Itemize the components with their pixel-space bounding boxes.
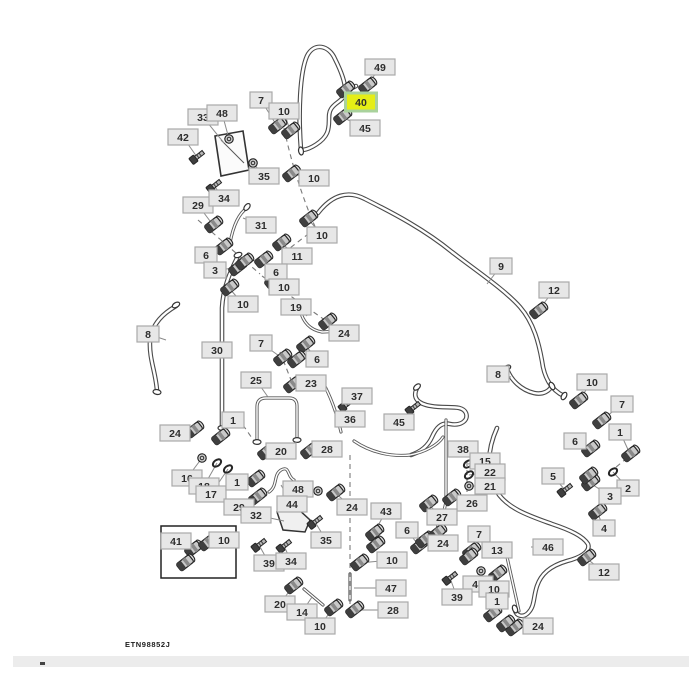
- hose-path: [318, 195, 564, 396]
- callout-number: 41: [170, 536, 182, 548]
- callout-number: 35: [320, 535, 332, 547]
- callout-number: 36: [344, 414, 356, 426]
- callout-label-layer: 4940457103348423510293431101163610101924…: [137, 59, 639, 634]
- callout-28[interactable]: 28: [312, 441, 342, 457]
- callout-9[interactable]: 9: [490, 258, 512, 274]
- callout-number: 24: [346, 502, 358, 514]
- hose-path: [300, 47, 345, 150]
- callout-number: 2: [625, 483, 631, 495]
- callout-number: 46: [542, 542, 554, 554]
- callout-number: 24: [437, 538, 449, 550]
- callout-number: 6: [203, 250, 209, 262]
- callout-number: 9: [498, 261, 504, 273]
- callout-number: 39: [263, 558, 275, 570]
- callout-47[interactable]: 47: [376, 580, 406, 596]
- callout-39[interactable]: 39: [442, 589, 472, 605]
- callout-4[interactable]: 4: [593, 520, 615, 536]
- part-48-icon[interactable]: [312, 485, 324, 497]
- callout-number: 10: [316, 230, 328, 242]
- callout-number: 7: [258, 95, 264, 107]
- callout-number: 28: [387, 605, 399, 617]
- callout-number: 10: [314, 621, 326, 633]
- callout-13[interactable]: 13: [482, 542, 512, 558]
- callout-number: 19: [290, 302, 302, 314]
- callout-number: 21: [484, 481, 496, 493]
- callout-10[interactable]: 10: [209, 532, 239, 548]
- callout-19[interactable]: 19: [281, 299, 311, 315]
- callout-number: 37: [351, 391, 363, 403]
- callout-number: 44: [286, 499, 298, 511]
- callout-number: 11: [291, 251, 302, 263]
- callout-6[interactable]: 6: [195, 247, 217, 263]
- hose-end-cap: [412, 383, 421, 392]
- callout-number: 6: [314, 354, 320, 366]
- callout-number: 28: [321, 444, 333, 456]
- callout-number: 24: [338, 328, 350, 340]
- callout-10[interactable]: 10: [577, 374, 607, 390]
- part-10-icon[interactable]: [220, 278, 240, 297]
- callout-34[interactable]: 34: [209, 190, 239, 206]
- callout-number: 7: [476, 529, 482, 541]
- callout-number: 34: [218, 193, 230, 205]
- callout-number: 10: [237, 299, 249, 311]
- callout-35[interactable]: 35: [249, 168, 279, 184]
- callout-number: 7: [258, 338, 264, 350]
- part-39-icon[interactable]: [442, 570, 459, 586]
- callout-number: 1: [230, 415, 236, 427]
- callout-1[interactable]: 1: [609, 424, 631, 440]
- part-16-icon[interactable]: [196, 452, 208, 464]
- callout-1[interactable]: 1: [226, 474, 248, 490]
- hose-path-inner: [318, 195, 564, 396]
- callout-number: 38: [457, 444, 469, 456]
- parts-diagram-stage: 4940457103348423510293431101163610101924…: [0, 0, 700, 700]
- callout-number: 5: [550, 471, 556, 483]
- callout-number: 25: [250, 375, 262, 387]
- callout-31[interactable]: 31: [246, 217, 276, 233]
- part-21-icon[interactable]: [463, 480, 475, 492]
- callout-number: 3: [607, 491, 613, 503]
- callout-17[interactable]: 17: [196, 486, 226, 502]
- callout-number: 1: [494, 596, 500, 608]
- callout-24[interactable]: 24: [523, 618, 553, 634]
- part-1-icon[interactable]: [621, 444, 641, 463]
- callout-35[interactable]: 35: [311, 532, 341, 548]
- part-39-icon[interactable]: [251, 537, 268, 553]
- callout-8[interactable]: 8: [137, 326, 159, 342]
- callout-45[interactable]: 45: [350, 120, 380, 136]
- callout-20[interactable]: 20: [266, 443, 296, 459]
- callout-3[interactable]: 3: [599, 488, 621, 504]
- callout-number: 14: [296, 607, 308, 619]
- callout-number: 6: [273, 267, 279, 279]
- callout-48[interactable]: 48: [207, 105, 237, 121]
- part-4-icon[interactable]: [588, 502, 608, 521]
- callout-number: 10: [218, 535, 230, 547]
- callout-28[interactable]: 28: [378, 602, 408, 618]
- callout-number: 24: [169, 428, 181, 440]
- callout-24[interactable]: 24: [329, 325, 359, 341]
- callout-6[interactable]: 6: [564, 433, 586, 449]
- callout-number: 27: [436, 512, 448, 524]
- callout-number: 10: [308, 173, 320, 185]
- callout-number: 1: [234, 477, 240, 489]
- callout-49[interactable]: 49: [365, 59, 395, 75]
- callout-number: 30: [211, 345, 223, 357]
- part-icon[interactable]: [176, 553, 196, 572]
- callout-number: 17: [205, 489, 217, 501]
- callout-number: 39: [451, 592, 463, 604]
- callout-number: 34: [285, 556, 297, 568]
- hose-end-cap: [243, 202, 252, 211]
- hose-end-cap: [253, 440, 261, 445]
- callout-number: 32: [250, 510, 262, 522]
- part-10-icon[interactable]: [350, 553, 370, 572]
- callout-number: 6: [404, 525, 410, 537]
- callout-24[interactable]: 24: [337, 499, 367, 515]
- callout-7[interactable]: 7: [611, 396, 633, 412]
- callout-number: 13: [491, 545, 503, 557]
- callout-number: 29: [192, 200, 204, 212]
- callout-number: 12: [548, 285, 560, 297]
- callout-number: 3: [212, 265, 218, 277]
- callout-number: 31: [255, 220, 267, 232]
- callout-44[interactable]: 44: [277, 496, 307, 512]
- callout-42[interactable]: 42: [168, 129, 198, 145]
- hose-end-cap: [293, 438, 301, 443]
- callout-27[interactable]: 27: [427, 509, 457, 525]
- callout-24[interactable]: 24: [428, 535, 458, 551]
- callout-number: 12: [598, 567, 610, 579]
- callout-number: 1: [617, 427, 623, 439]
- callout-3[interactable]: 3: [204, 262, 226, 278]
- tube-path-inner: [257, 398, 297, 442]
- callout-1[interactable]: 1: [222, 412, 244, 428]
- callout-48[interactable]: 48: [283, 481, 313, 497]
- callout-number: 22: [484, 467, 496, 479]
- callout-12[interactable]: 12: [539, 282, 569, 298]
- tube-path: [257, 398, 297, 442]
- callout-number: 24: [532, 621, 544, 633]
- tube-path-inner: [304, 589, 323, 605]
- callout-number: 8: [145, 329, 151, 341]
- callout-11[interactable]: 11: [282, 248, 312, 264]
- callout-number: 26: [466, 498, 478, 510]
- callout-40-highlighted[interactable]: 40: [346, 93, 377, 111]
- callout-number: 10: [278, 282, 290, 294]
- callout-6[interactable]: 6: [265, 264, 287, 280]
- callout-number: 48: [292, 484, 304, 496]
- callout-1[interactable]: 1: [486, 593, 508, 609]
- part-34-icon[interactable]: [276, 538, 293, 554]
- callout-number: 10: [386, 555, 398, 567]
- hose-path: [150, 306, 176, 391]
- part-42-icon[interactable]: [189, 149, 206, 165]
- callout-23[interactable]: 23: [296, 375, 326, 391]
- callout-number: 23: [305, 378, 317, 390]
- callout-7[interactable]: 7: [250, 335, 272, 351]
- callout-46[interactable]: 46: [533, 539, 563, 555]
- hose-tube-layer: [150, 47, 627, 616]
- part-10-icon[interactable]: [569, 391, 589, 410]
- callout-number: 20: [275, 446, 287, 458]
- callout-10[interactable]: 10: [377, 552, 407, 568]
- callout-number: 4: [601, 523, 607, 535]
- callout-5[interactable]: 5: [542, 468, 564, 484]
- callout-10[interactable]: 10: [228, 296, 258, 312]
- callout-number: 47: [385, 583, 397, 595]
- callout-45[interactable]: 45: [384, 414, 414, 430]
- callout-10[interactable]: 10: [305, 618, 335, 634]
- part-1-icon[interactable]: [246, 469, 266, 488]
- callout-34[interactable]: 34: [276, 553, 306, 569]
- part-12-icon[interactable]: [529, 301, 549, 320]
- callout-number: 45: [393, 417, 405, 429]
- callout-number: 35: [258, 171, 270, 183]
- callout-number: 7: [619, 399, 625, 411]
- callout-number: 8: [495, 369, 501, 381]
- callout-number: 48: [216, 108, 228, 120]
- callout-26[interactable]: 26: [457, 495, 487, 511]
- callout-30[interactable]: 30: [202, 342, 232, 358]
- callout-37[interactable]: 37: [342, 388, 372, 404]
- callout-43[interactable]: 43: [371, 503, 401, 519]
- part-28-icon[interactable]: [345, 600, 365, 619]
- callout-25[interactable]: 25: [241, 372, 271, 388]
- part-45-icon[interactable]: [405, 400, 422, 416]
- callout-number: 49: [374, 62, 386, 74]
- part-10-icon[interactable]: [299, 209, 319, 228]
- callout-number: 10: [278, 106, 290, 118]
- callout-number: 10: [586, 377, 598, 389]
- hose-end-cap: [298, 147, 304, 156]
- hose-end-cap: [153, 389, 162, 395]
- callout-number: 20: [274, 599, 286, 611]
- scrollbar-thumb[interactable]: [40, 662, 45, 665]
- tube-path: [230, 208, 247, 243]
- part-10-icon[interactable]: [324, 598, 344, 617]
- callout-number: 43: [380, 506, 392, 518]
- part-48-icon[interactable]: [475, 565, 487, 577]
- callout-36[interactable]: 36: [335, 411, 365, 427]
- callout-32[interactable]: 32: [241, 507, 271, 523]
- callout-number: 45: [359, 123, 371, 135]
- callout-10[interactable]: 10: [307, 227, 337, 243]
- callout-8[interactable]: 8: [487, 366, 509, 382]
- callout-41[interactable]: 41: [161, 533, 191, 549]
- exploded-parts-diagram: 4940457103348423510293431101163610101924…: [0, 0, 700, 700]
- callout-number: 42: [177, 132, 189, 144]
- callout-21[interactable]: 21: [475, 478, 505, 494]
- callout-6[interactable]: 6: [396, 522, 418, 538]
- callout-7[interactable]: 7: [468, 526, 490, 542]
- hose-end-cap: [171, 301, 180, 309]
- horizontal-scrollbar[interactable]: [13, 656, 689, 667]
- callout-number: 40: [355, 97, 367, 109]
- part-20-icon[interactable]: [284, 576, 304, 595]
- callout-10[interactable]: 10: [269, 279, 299, 295]
- callout-number: 6: [572, 436, 578, 448]
- callout-12[interactable]: 12: [589, 564, 619, 580]
- part-35-icon[interactable]: [307, 514, 324, 530]
- callout-10[interactable]: 10: [299, 170, 329, 186]
- callout-10[interactable]: 10: [269, 103, 299, 119]
- figure-code-text: ETN98852J: [125, 640, 170, 649]
- callout-24[interactable]: 24: [160, 425, 190, 441]
- callout-6[interactable]: 6: [306, 351, 328, 367]
